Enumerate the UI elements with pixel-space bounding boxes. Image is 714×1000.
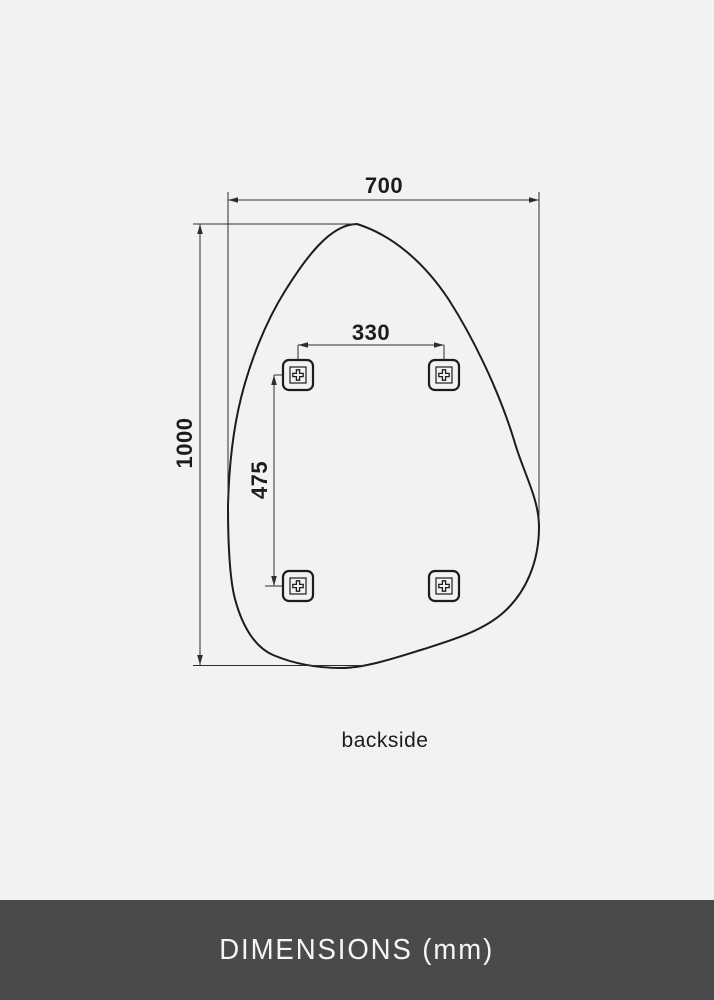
bracket-body — [283, 360, 313, 390]
arrow-down-icon — [197, 655, 203, 665]
width-dimension-value: 700 — [365, 173, 403, 199]
arrow-up-icon — [271, 375, 277, 385]
bracket-spacing-vertical-value: 475 — [247, 461, 273, 499]
mirror-dimension-diagram: 700 1000 330 475 backside DIMENSIONS (mm… — [0, 0, 714, 1000]
height-dimension — [193, 224, 368, 666]
view-label: backside — [342, 729, 429, 753]
arrow-up-icon — [197, 224, 203, 234]
bracket-body — [429, 571, 459, 601]
bracket-spacing-horizontal-value: 330 — [352, 320, 390, 346]
arrow-right-icon — [434, 342, 444, 348]
arrow-left-icon — [298, 342, 308, 348]
width-dimension — [228, 192, 539, 522]
arrow-left-icon — [228, 197, 238, 203]
mounting-bracket-bottom-left — [283, 571, 313, 601]
mounting-bracket-top-right — [429, 360, 459, 390]
arrow-right-icon — [529, 197, 539, 203]
mounting-bracket-top-left — [283, 360, 313, 390]
bracket-body — [283, 571, 313, 601]
footer-title: DIMENSIONS (mm) — [220, 934, 495, 967]
bracket-body — [429, 360, 459, 390]
height-dimension-value: 1000 — [172, 418, 198, 469]
footer-bar: DIMENSIONS (mm) — [0, 900, 714, 1000]
arrow-down-icon — [271, 576, 277, 586]
drawing-canvas — [0, 0, 714, 900]
technical-drawing: 700 1000 330 475 backside — [0, 0, 714, 900]
mirror-outline — [228, 224, 539, 668]
mounting-bracket-bottom-right — [429, 571, 459, 601]
